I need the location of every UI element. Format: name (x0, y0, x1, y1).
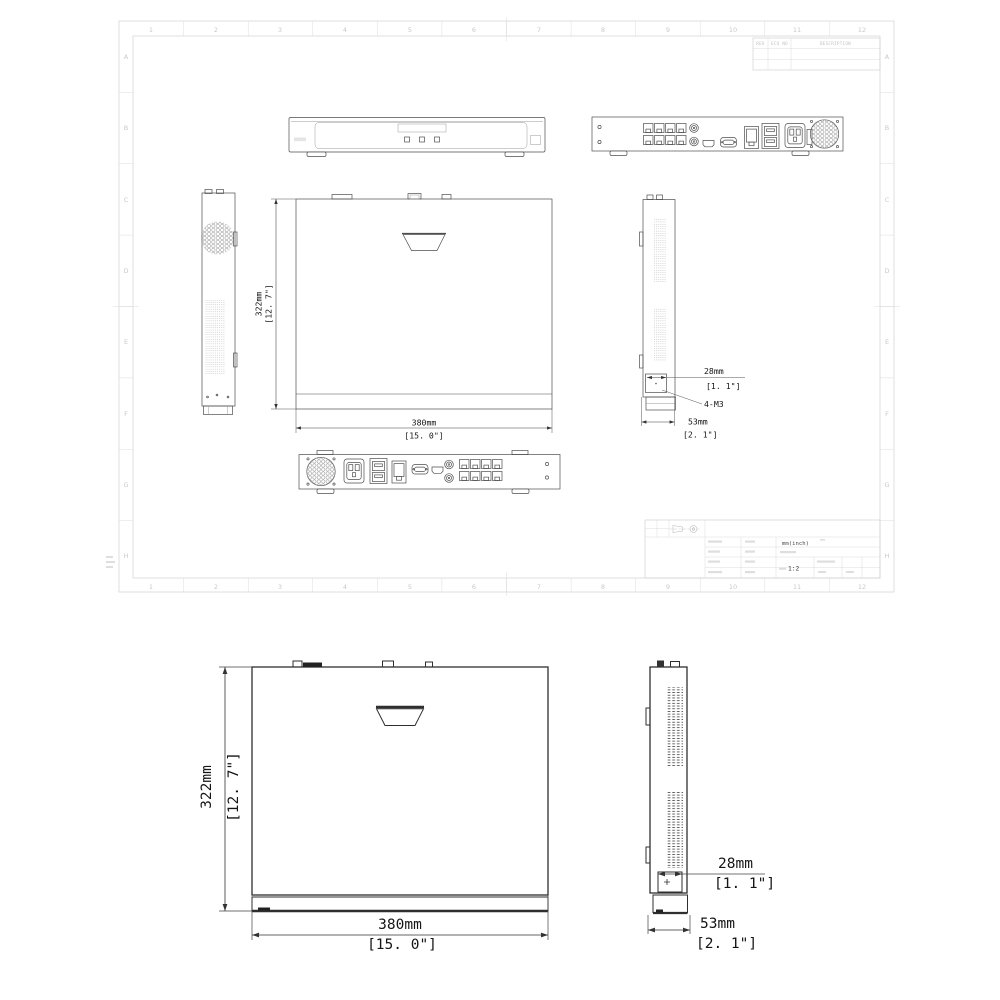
power-inlet (344, 459, 364, 483)
side-vent-dots (205, 300, 225, 374)
dim-width-in: [15. 0"] (367, 937, 437, 953)
grid-number: 12 (858, 583, 866, 591)
poe-ports (644, 124, 687, 145)
grid-letter: B (124, 124, 128, 132)
grid-number: 8 (601, 26, 605, 34)
dim-depth-in: [2. 1"] (696, 936, 757, 952)
grid-number: 10 (729, 583, 737, 591)
grid-labels: 1 2 3 4 5 6 7 8 9 10 11 12 1 2 3 4 5 6 7… (123, 26, 889, 591)
dim-bracket-mm: 28mm (718, 856, 753, 872)
grid-letter: G (123, 481, 128, 489)
grid-letter: G (884, 481, 889, 489)
power-inlet (785, 124, 805, 148)
grid-number: 4 (343, 583, 347, 591)
page: { "sheet": { "grid_numbers": ["1","2","3… (0, 0, 1000, 1000)
large-top-view: 322mm [12. 7"] 380mm [15. 0"] (199, 661, 548, 953)
usb-ports (762, 124, 779, 149)
grid-number: 7 (537, 26, 541, 34)
side-vent-honeycomb (201, 222, 234, 255)
dim-depth-in: [2. 1"] (683, 430, 718, 440)
bottom-view (299, 451, 560, 494)
bnc-connector (690, 137, 699, 146)
dim-screw-callout: 4-M3 (662, 390, 724, 409)
grid-letter: C (885, 196, 890, 204)
grid-letter: F (885, 410, 889, 418)
fan-grille (307, 457, 335, 485)
grid-letter: D (884, 267, 889, 275)
side-vent-dots (654, 218, 666, 282)
front-view (289, 118, 545, 157)
dim-screw-spec: 4-M3 (704, 399, 724, 409)
dim-depth-mm: 53mm (688, 417, 708, 427)
grid-letter: A (124, 53, 129, 61)
grid-number: 12 (858, 26, 866, 34)
vga-port (721, 138, 737, 148)
grid-number: 11 (793, 583, 801, 591)
grid-number: 1 (149, 26, 153, 34)
handle-recess (377, 709, 424, 726)
grid-letter: H (885, 552, 890, 560)
dim-depth-large: 53mm [2. 1"] (648, 915, 757, 952)
side-view-right: 28mm [1. 1"] 4-M3 53mm [2. 1"] (640, 195, 746, 440)
grid-number: 3 (278, 26, 282, 34)
sheet-corner-marks (106, 556, 115, 568)
dim-width-mm: 380mm (378, 917, 422, 933)
grid-number: 10 (729, 26, 737, 34)
dim-depth-mm: 53mm (700, 916, 735, 932)
dim-width-mm: 380mm (412, 418, 437, 428)
dim-height-mm: 322mm (199, 765, 215, 809)
vga-port (412, 465, 428, 475)
revision-col-rev: REV (756, 41, 765, 46)
grid-number: 5 (408, 26, 412, 34)
grid-letter: C (124, 196, 129, 204)
hdmi-port (703, 141, 714, 147)
grid-number: 3 (278, 583, 282, 591)
grid-number: 4 (343, 26, 347, 34)
dim-bracket-mm: 28mm (704, 366, 724, 376)
dim-height-in: [12. 7"] (226, 752, 242, 822)
revision-col-description: DESCRIPTION (820, 41, 851, 46)
grid-letter: B (885, 124, 889, 132)
bnc-connector (690, 124, 699, 133)
fan-grille (810, 120, 838, 148)
grid-number: 9 (666, 26, 670, 34)
side-vent-dots (654, 308, 666, 362)
bnc-connector (445, 460, 454, 469)
title-block-scale: 1:2 (788, 566, 799, 573)
side-vent-slots (667, 792, 684, 868)
grid-number: 11 (793, 26, 801, 34)
grid-letter: H (124, 552, 129, 560)
lan-port (745, 127, 759, 149)
poe-ports (460, 460, 503, 481)
dim-width-large: 380mm [15. 0"] (252, 895, 548, 953)
usb-ports (370, 459, 387, 484)
title-block-field-bars (708, 539, 854, 573)
grid-number: 6 (472, 26, 476, 34)
title-block: mm(inch) 1:2 (645, 520, 880, 578)
grid-number: 9 (666, 583, 670, 591)
dim-height-in: [12. 7"] (264, 284, 274, 323)
handle-recess (403, 235, 445, 251)
grid-letter: E (885, 338, 889, 346)
rear-view (592, 117, 843, 156)
dim-height-small: 322mm [12. 7"] (254, 199, 297, 409)
revision-table: REV ECO NO DESCRIPTION (753, 38, 880, 70)
dim-bracket-small: 28mm [1. 1"] (647, 366, 745, 391)
hdmi-port (432, 467, 443, 473)
grid-number: 8 (601, 583, 605, 591)
sheet-frame (106, 17, 900, 596)
dim-bracket-in: [1. 1"] (714, 876, 775, 892)
dim-height-mm: 322mm (254, 292, 264, 317)
side-view-left (201, 190, 237, 415)
revision-col-eco: ECO NO (771, 41, 788, 46)
bnc-connector (445, 474, 454, 483)
large-side-view: 28mm [1. 1"] 53mm [2. 1"] (646, 661, 775, 953)
grid-number: 1 (149, 583, 153, 591)
grid-letter: F (124, 410, 128, 418)
grid-number: 5 (408, 583, 412, 591)
title-block-units: mm(inch) (782, 541, 809, 547)
side-vent-slots (667, 687, 684, 767)
ir-window (531, 136, 541, 145)
grid-number: 6 (472, 583, 476, 591)
grid-letter: A (885, 53, 890, 61)
dim-width-in: [15. 0"] (404, 431, 443, 441)
dim-width-small: 380mm [15. 0"] (296, 409, 552, 441)
grid-letter: E (124, 338, 128, 346)
lan-port (392, 461, 406, 483)
engineering-drawing: 1 2 3 4 5 6 7 8 9 10 11 12 1 2 3 4 5 6 7… (0, 0, 1000, 1000)
grid-letter: D (123, 267, 128, 275)
dim-height-large: 322mm [12. 7"] (199, 667, 252, 911)
top-view: 322mm [12. 7"] 380mm [15. 0"] (254, 194, 553, 441)
projection-symbol-icon (670, 526, 700, 533)
grid-number: 2 (214, 26, 218, 34)
brand-logo (294, 138, 306, 142)
grid-number: 2 (214, 583, 218, 591)
dim-bracket-in: [1. 1"] (706, 381, 741, 391)
grid-number: 7 (537, 583, 541, 591)
